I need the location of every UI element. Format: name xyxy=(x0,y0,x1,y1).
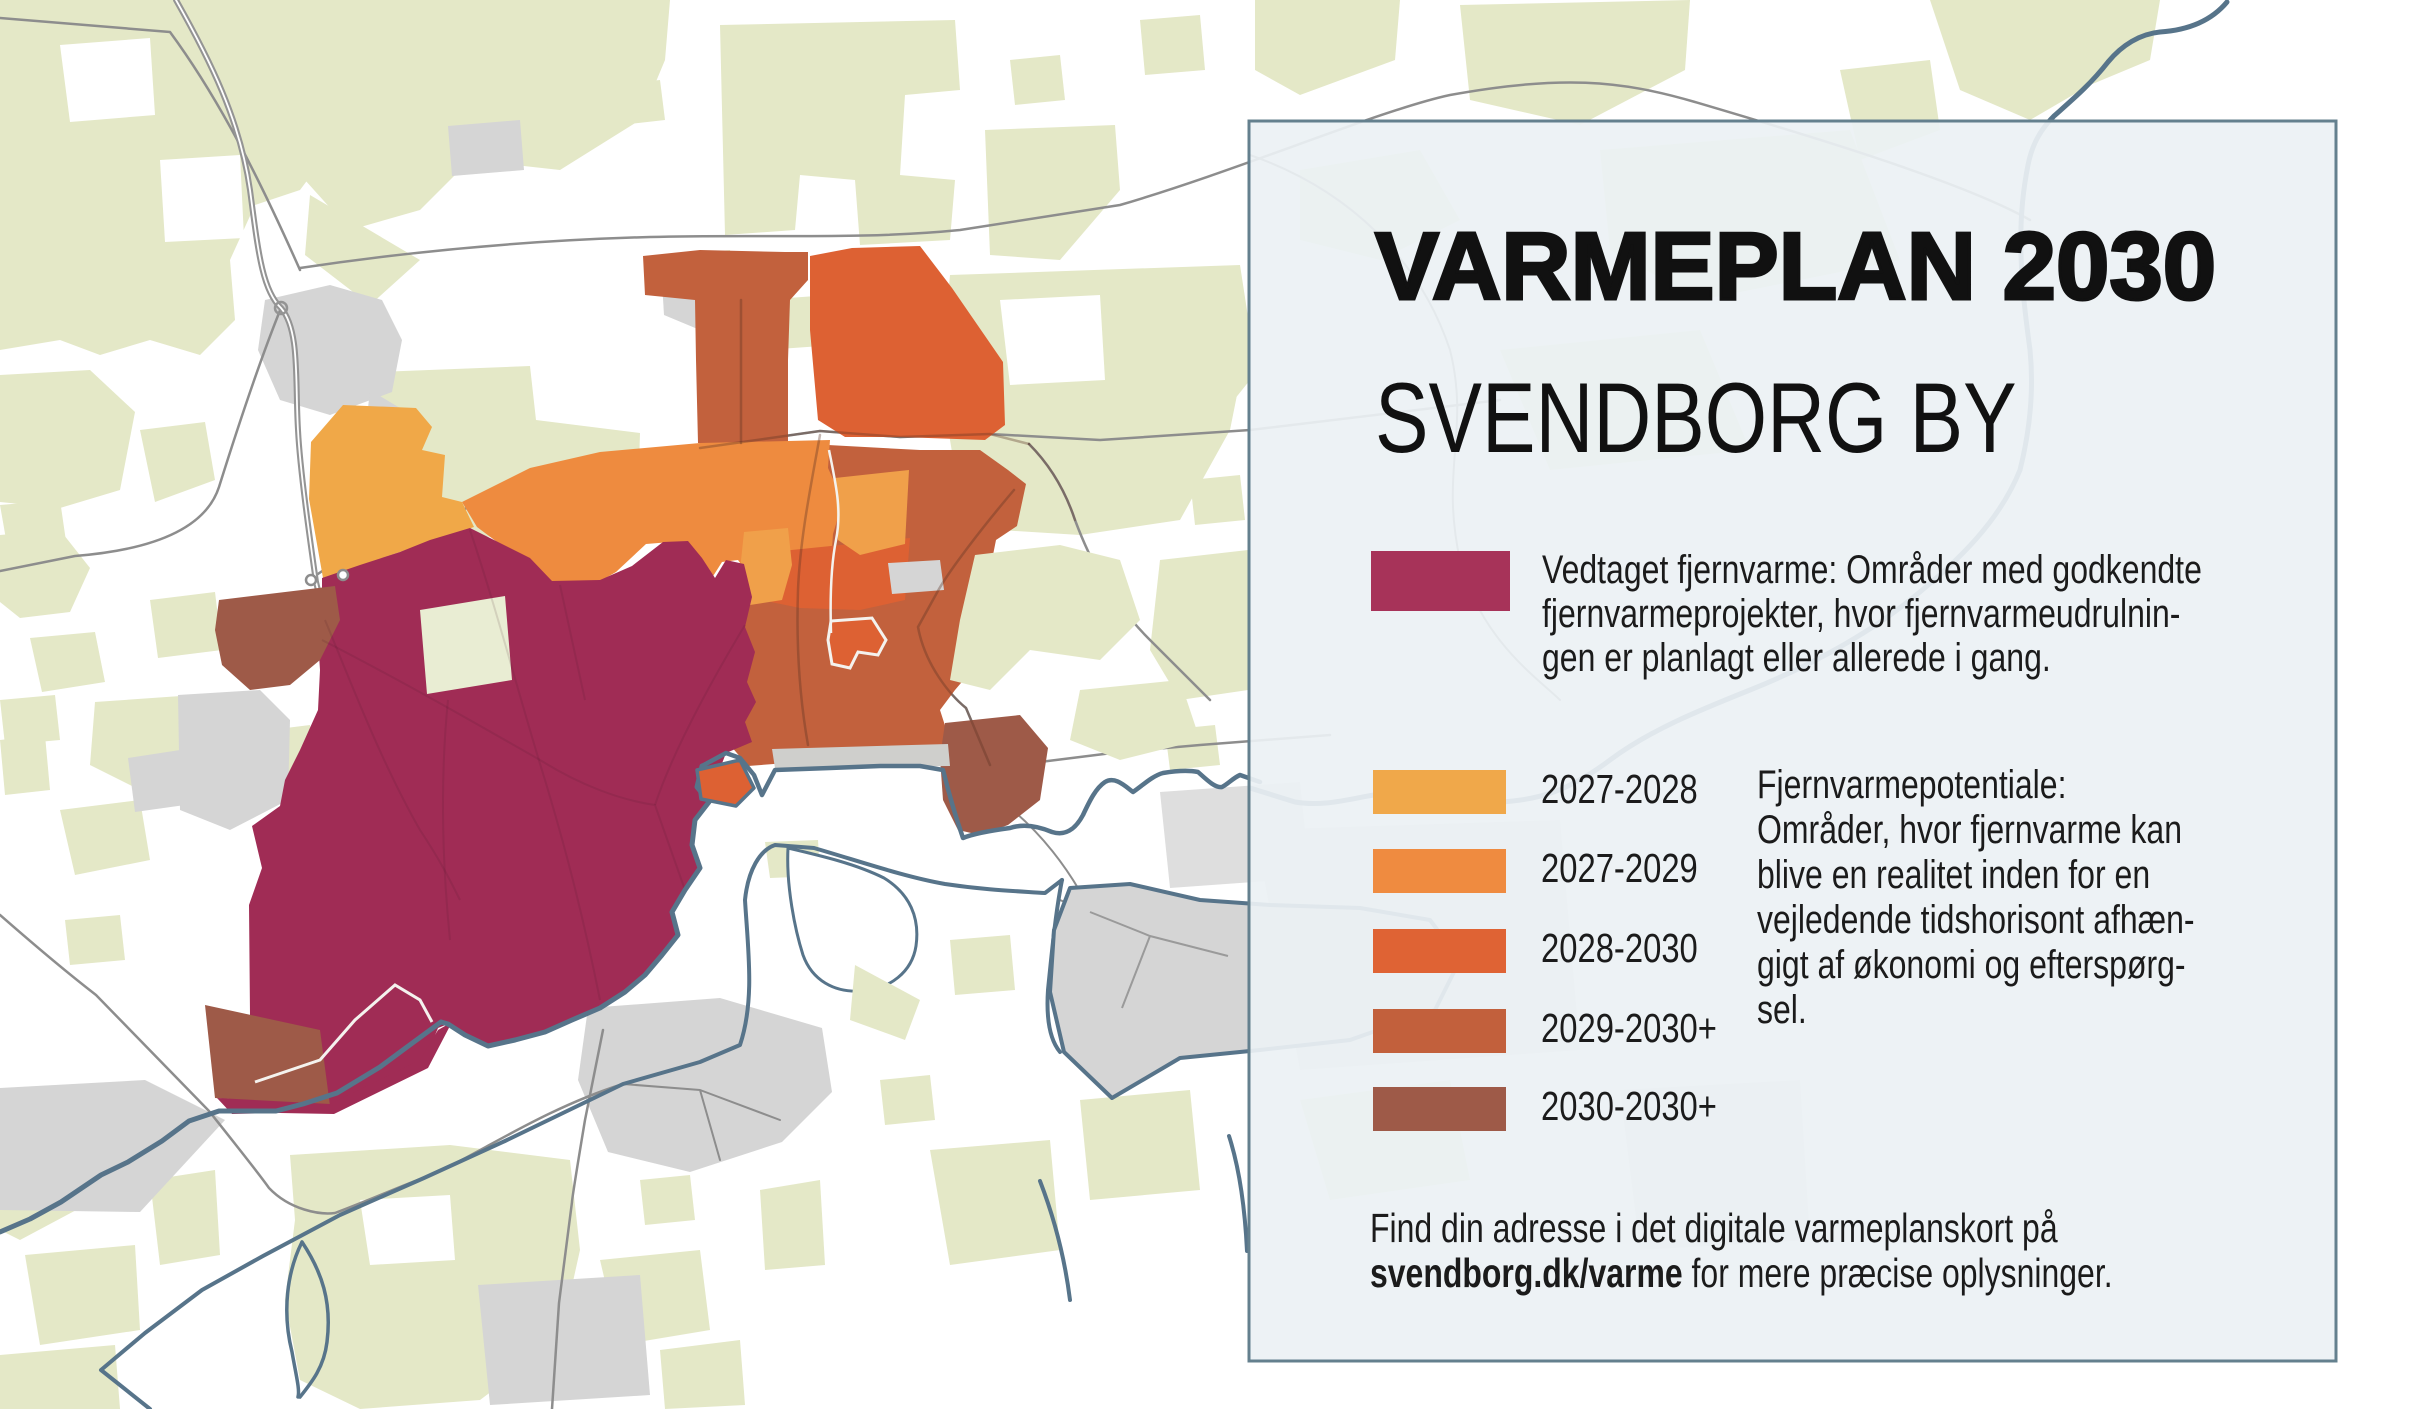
svg-text:blive en realitet inden for en: blive en realitet inden for en xyxy=(1757,852,2150,897)
svg-text:2029-2030+: 2029-2030+ xyxy=(1541,1004,1717,1050)
svg-text:2027-2028: 2027-2028 xyxy=(1541,765,1698,811)
svg-text:Vedtaget fjernvarme: Områder m: Vedtaget fjernvarme: Områder med godkend… xyxy=(1542,547,2202,592)
svg-text:VARMEPLAN 2030: VARMEPLAN 2030 xyxy=(1375,213,2216,320)
svg-text:fjernvarmeprojekter, hvor fjer: fjernvarmeprojekter, hvor fjernvarmeudru… xyxy=(1542,591,2180,636)
svg-text:svendborg.dk/varme for mere pr: svendborg.dk/varme for mere præcise oply… xyxy=(1370,1250,2113,1296)
svg-text:vejledende tidshorisont afhæn-: vejledende tidshorisont afhæn- xyxy=(1757,897,2195,942)
svg-text:2027-2029: 2027-2029 xyxy=(1541,844,1698,890)
svg-text:Find din adresse i det digital: Find din adresse i det digitale varmepla… xyxy=(1370,1205,2058,1251)
svg-text:2030-2030+: 2030-2030+ xyxy=(1541,1082,1717,1128)
svg-text:Områder, hvor fjernvarme kan: Områder, hvor fjernvarme kan xyxy=(1757,807,2182,852)
svg-text:Fjernvarmepotentiale:: Fjernvarmepotentiale: xyxy=(1757,762,2066,807)
svg-text:SVENDBORG BY: SVENDBORG BY xyxy=(1375,363,2017,474)
svg-text:gigt af økonomi og efterspørg-: gigt af økonomi og efterspørg- xyxy=(1757,942,2186,987)
svg-text:2028-2030: 2028-2030 xyxy=(1541,924,1698,970)
svg-text:sel.: sel. xyxy=(1757,987,1807,1032)
svg-text:gen er planlagt eller allerede: gen er planlagt eller allerede i gang. xyxy=(1542,635,2051,680)
